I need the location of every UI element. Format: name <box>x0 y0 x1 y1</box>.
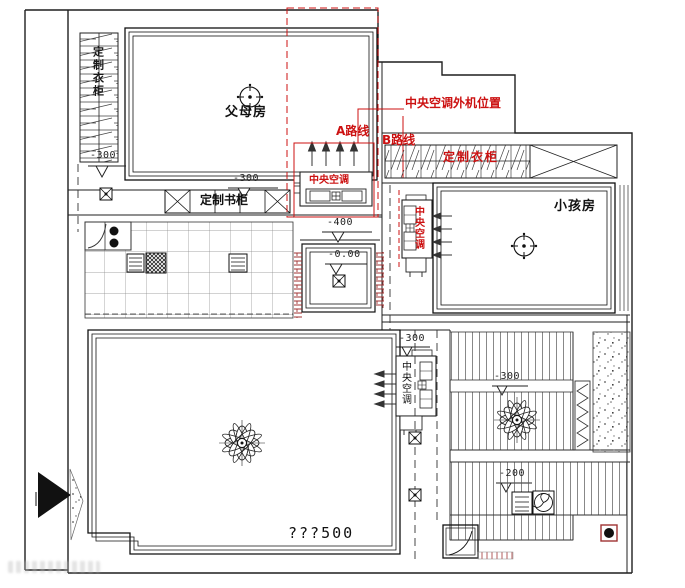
floor-plan-drawing <box>0 0 685 588</box>
downlight-symbol <box>601 525 617 541</box>
threshold-strip <box>478 552 513 559</box>
kitchen-tiles <box>85 222 293 318</box>
parents-room-outline <box>125 28 377 180</box>
airflow-arrows-kids <box>433 213 452 258</box>
ac-unit-kids <box>402 195 432 277</box>
entrance-door-stipple <box>70 469 83 540</box>
ac-unit-living <box>396 350 436 435</box>
airflow-arrows-living <box>375 371 398 407</box>
switch-symbol-left <box>100 188 112 200</box>
wardrobe-kids-hatch <box>385 145 530 178</box>
kids-room-outline <box>433 183 615 313</box>
wardrobe-left <box>80 33 118 162</box>
brick-wall-right <box>376 252 384 308</box>
switch-symbol-corridor-1 <box>409 432 421 444</box>
switch-symbol-corridor-2 <box>409 489 421 501</box>
entrance-arrow <box>38 472 71 518</box>
brick-wall-left <box>294 250 302 318</box>
balcony-stipple <box>593 332 630 452</box>
ceiling-light-kids <box>511 233 537 259</box>
ac-unit-top <box>294 172 372 206</box>
bookcase <box>165 190 290 213</box>
ceiling-light-parents <box>237 84 263 110</box>
airflow-arrows-up <box>309 142 358 166</box>
exhaust-fan <box>533 491 554 514</box>
watermark <box>8 561 100 573</box>
ceiling-rose-living <box>219 420 265 466</box>
cabinet-x-box <box>530 145 617 178</box>
hall-symbol <box>333 275 345 287</box>
zigzag-strip <box>575 381 590 450</box>
floor-plan-canvas: 父母房 小孩房 定制衣柜 定制书柜 定制衣柜 中央空调 中央空调 中央空调 中央… <box>0 0 685 588</box>
window-right <box>620 185 628 311</box>
exhaust-vent <box>512 492 532 514</box>
